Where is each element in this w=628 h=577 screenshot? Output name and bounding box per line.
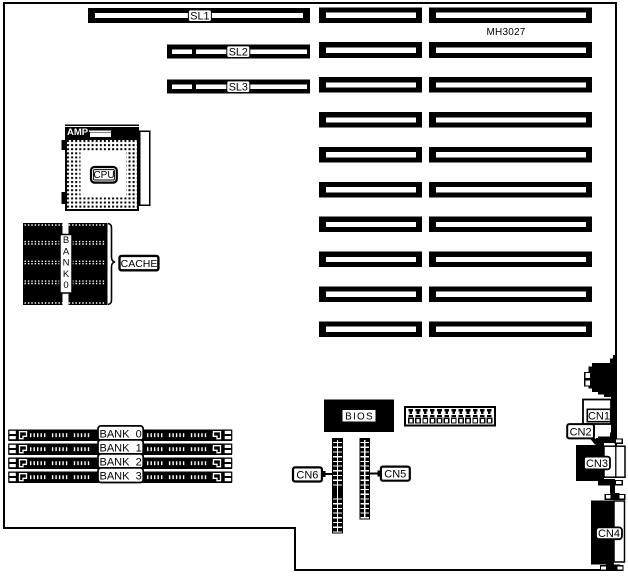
svg-text:SL1: SL1 (190, 11, 209, 23)
svg-text:CN6: CN6 (296, 469, 318, 481)
svg-text:CN3: CN3 (586, 458, 608, 470)
svg-text:0: 0 (63, 280, 68, 291)
svg-text:AMP: AMP (67, 127, 89, 138)
svg-text:CN1: CN1 (588, 410, 610, 422)
svg-text:MH3027: MH3027 (487, 27, 526, 38)
svg-text:BANK 1: BANK 1 (100, 442, 142, 454)
svg-text:K: K (63, 269, 70, 280)
svg-text:CPU: CPU (93, 170, 114, 181)
svg-text:CACHE: CACHE (121, 258, 158, 270)
svg-text:CN2: CN2 (570, 426, 592, 438)
svg-text:BANK 0: BANK 0 (100, 428, 142, 440)
svg-text:B: B (63, 235, 69, 246)
svg-text:BIOS: BIOS (345, 411, 374, 422)
svg-text:SL3: SL3 (229, 82, 248, 94)
svg-text:SL2: SL2 (229, 47, 248, 59)
svg-text:BANK 3: BANK 3 (100, 470, 142, 482)
svg-text:A: A (63, 246, 70, 257)
svg-text:N: N (63, 258, 70, 269)
svg-text:BANK 2: BANK 2 (100, 456, 142, 468)
svg-text:CN5: CN5 (384, 469, 406, 481)
svg-text:CN4: CN4 (598, 528, 620, 540)
